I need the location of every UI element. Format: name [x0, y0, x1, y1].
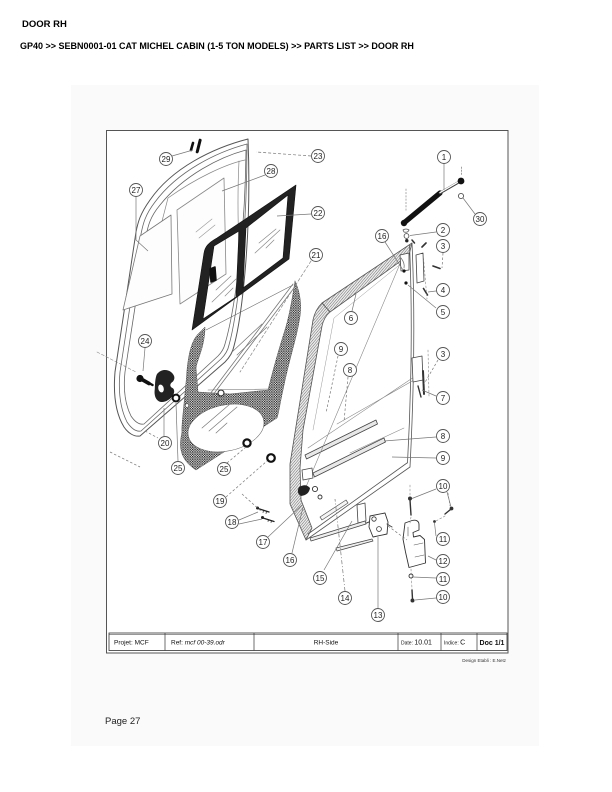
- svg-text:27: 27: [132, 186, 141, 195]
- svg-text:5: 5: [441, 308, 446, 317]
- svg-text:Design Etabli : E.Netz: Design Etabli : E.Netz: [462, 658, 507, 663]
- svg-text:Indice: C: Indice: C: [444, 640, 465, 647]
- svg-text:8: 8: [348, 366, 353, 375]
- svg-text:22: 22: [314, 209, 323, 218]
- svg-text:9: 9: [441, 454, 446, 463]
- svg-text:19: 19: [216, 497, 225, 506]
- svg-text:11: 11: [439, 575, 448, 584]
- svg-text:6: 6: [349, 314, 354, 323]
- svg-text:Doc 1/1: Doc 1/1: [480, 640, 505, 647]
- svg-text:21: 21: [312, 251, 321, 260]
- svg-text:15: 15: [316, 574, 325, 583]
- svg-text:13: 13: [374, 611, 383, 620]
- svg-text:17: 17: [259, 538, 268, 547]
- svg-text:10: 10: [439, 482, 448, 491]
- svg-text:Projet: MCF: Projet: MCF: [114, 640, 149, 647]
- svg-text:RH-Side: RH-Side: [314, 640, 339, 647]
- svg-text:4: 4: [441, 286, 446, 295]
- svg-text:10: 10: [439, 593, 448, 602]
- svg-text:Ref: mcf 00-39.odr: Ref: mcf 00-39.odr: [171, 640, 226, 647]
- svg-text:25: 25: [174, 464, 183, 473]
- svg-text:2: 2: [441, 226, 446, 235]
- svg-text:28: 28: [267, 167, 276, 176]
- svg-text:14: 14: [341, 594, 350, 603]
- svg-text:3: 3: [441, 350, 446, 359]
- svg-text:9: 9: [339, 345, 344, 354]
- svg-text:16: 16: [378, 232, 387, 241]
- svg-text:7: 7: [441, 394, 446, 403]
- svg-text:11: 11: [439, 535, 448, 544]
- svg-text:29: 29: [162, 155, 171, 164]
- svg-text:30: 30: [476, 215, 485, 224]
- svg-text:25: 25: [220, 465, 229, 474]
- svg-text:12: 12: [439, 557, 448, 566]
- svg-text:Date: 10.01: Date: 10.01: [401, 640, 432, 647]
- svg-text:20: 20: [161, 439, 170, 448]
- svg-text:8: 8: [441, 432, 446, 441]
- svg-text:1: 1: [442, 153, 447, 162]
- svg-text:18: 18: [228, 518, 237, 527]
- svg-text:16: 16: [286, 556, 295, 565]
- svg-text:23: 23: [314, 152, 323, 161]
- svg-text:24: 24: [141, 337, 150, 346]
- svg-text:3: 3: [441, 242, 446, 251]
